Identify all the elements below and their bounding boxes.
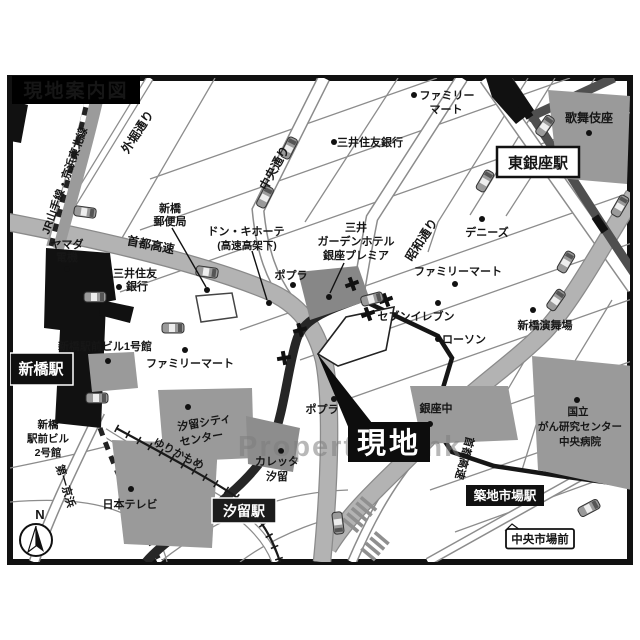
label-lawson: ローソン	[442, 334, 486, 346]
label-donki-1: ドン・キホーテ	[208, 225, 285, 238]
white-building	[196, 293, 237, 322]
station-box-higashi-ginza: 東銀座駅	[497, 147, 579, 177]
page-title: 現地案内図	[23, 79, 128, 102]
label-mitsui-bank-shimbashi-2: 銀行	[126, 279, 148, 293]
label-famima-left: ファミリーマート	[146, 357, 234, 370]
svg-text:中央市場前: 中央市場前	[511, 532, 569, 546]
label-mitsui-garden-3: 銀座プレミア	[323, 248, 389, 262]
station-box-shimbashi: 新橋駅	[10, 353, 73, 385]
label-ginza-chu: 銀座中	[420, 401, 453, 415]
station-box-shiodome: 汐留駅	[212, 498, 276, 523]
svg-text:東銀座駅: 東銀座駅	[508, 154, 569, 172]
label-mitsui-garden-2: ガーデンホテル	[318, 234, 395, 248]
label-ekimae-bldg2-3: 2号館	[35, 446, 62, 459]
svg-text:汐留駅: 汐留駅	[223, 503, 266, 519]
label-famima-top-2: マート	[430, 103, 463, 116]
label-ekimae-bldg2-2: 駅前ビル	[27, 432, 69, 445]
label-donki-2: (高速高架下)	[217, 239, 277, 252]
map-title: 現地案内図	[12, 76, 140, 104]
label-famima-top-1: ファミリー	[420, 89, 475, 102]
car-icon	[332, 511, 345, 534]
label-mitsui-bank-shimbashi-1: 三井住友	[113, 266, 157, 280]
label-caretta-2: 汐留	[266, 469, 288, 483]
svg-text:新橋駅: 新橋駅	[18, 360, 64, 378]
car-icon	[162, 323, 184, 333]
nippon-tv-building	[112, 440, 218, 548]
label-ncc-2: がん研究センター	[538, 420, 622, 433]
label-yamada-1: ヤマダ	[51, 237, 84, 251]
label-mitsui-garden-1: 三井	[345, 220, 367, 234]
label-ncc-1: 国立	[568, 405, 589, 418]
label-poplar1: ポプラ	[275, 268, 308, 282]
label-enbujo: 新橋演舞場	[518, 318, 573, 332]
site-marker: 現地	[348, 422, 430, 462]
compass-n-label: N	[35, 507, 44, 522]
label-post-office-2: 郵便局	[154, 214, 187, 228]
car-icon	[86, 393, 108, 403]
label-mitsui-bank-ginza: 三井住友銀行	[337, 135, 403, 149]
label-seven-eleven: セブンイレブン	[378, 309, 455, 323]
label-ekimae-bldg2-1: 新橋	[38, 418, 59, 431]
label-kabukiza: 歌舞伎座	[565, 110, 613, 125]
svg-text:現地: 現地	[357, 427, 421, 460]
svg-text:築地市場駅: 築地市場駅	[473, 488, 537, 503]
label-nittele: 日本テレビ	[103, 497, 158, 511]
label-poplar2: ポプラ	[306, 402, 339, 416]
ekimae-bldg1-building	[88, 352, 138, 392]
label-yamada-2: 電機	[56, 250, 78, 264]
label-ekimae-bldg1: 新橋駅前ビル1号館	[58, 339, 152, 353]
label-dennys: デニーズ	[465, 225, 508, 239]
label-famima-right: ファミリーマート	[414, 265, 502, 278]
station-box-tsukiji-shijo: 築地市場駅	[466, 485, 544, 506]
car-icon	[84, 292, 106, 302]
label-ncc-3: 中央病院	[559, 435, 601, 448]
label-post-office-1: 新橋	[159, 201, 182, 215]
site-guide-map: JR山手線・京浜東北線 外堀通り 中央通り 昭和通り 首都高速 首都高速 第一京…	[0, 0, 640, 640]
